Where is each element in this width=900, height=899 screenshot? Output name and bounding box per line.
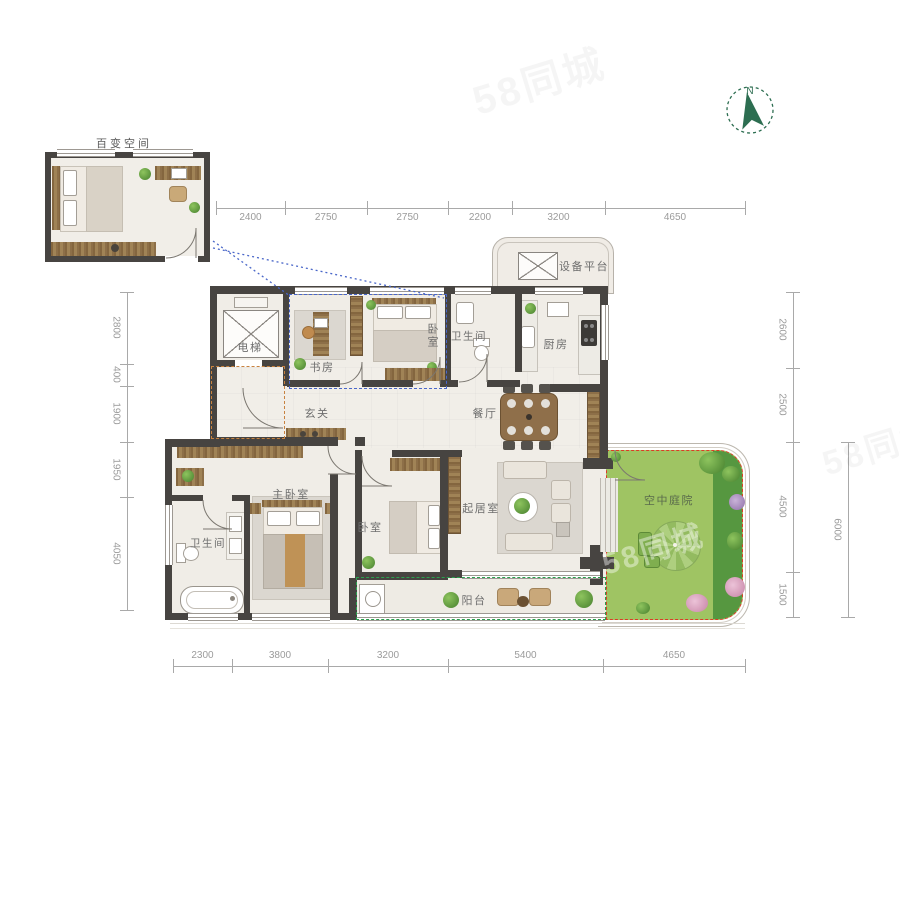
dimension-tick [786, 617, 800, 618]
dimension-label: 3200 [364, 650, 412, 661]
door-arc [243, 388, 283, 428]
dimension-tick [512, 201, 513, 215]
door-arc [413, 357, 440, 384]
dimension-label: 2200 [456, 212, 504, 223]
connector-line [213, 241, 290, 296]
dimension-label: 4050 [111, 529, 122, 577]
dimension-label: 2300 [179, 650, 227, 661]
door-arc [166, 228, 196, 258]
room-label-courtyard: 空中庭院 [644, 492, 694, 508]
room-label-foyer: 玄关 [305, 405, 330, 421]
dimension-label: 4650 [650, 650, 698, 661]
dimension-tick [786, 368, 800, 369]
dimension-tick [120, 364, 134, 365]
door-arc [328, 446, 356, 474]
room-label-master: 主卧室 [272, 486, 310, 502]
room-label-master-bath: 卫生间 [190, 536, 226, 551]
door-arc [203, 500, 232, 529]
dimension-tick [120, 292, 134, 293]
room-label-kitchen: 厨房 [544, 336, 569, 352]
room-label-bath-top: 卫生间 [451, 329, 487, 344]
dimension-label: 4650 [651, 212, 699, 223]
room-label-living: 起居室 [462, 500, 500, 516]
dimension-label: 2400 [227, 212, 275, 223]
room-label-bedroom-low: 卧室 [358, 519, 383, 535]
dimension-line [216, 208, 745, 209]
room-label-balcony: 阳台 [462, 592, 487, 608]
dimension-tick [328, 659, 329, 673]
dimension-tick [285, 201, 286, 215]
dimension-tick [232, 659, 233, 673]
dimension-tick [786, 572, 800, 573]
compass: N [727, 86, 773, 133]
dimension-tick [603, 659, 604, 673]
dimension-tick [120, 386, 134, 387]
door-arc [340, 362, 362, 384]
dimension-line [127, 292, 128, 610]
dimension-line [848, 442, 849, 617]
dimension-label: 2600 [777, 306, 788, 354]
dimension-label: 3800 [256, 650, 304, 661]
door-arc [459, 354, 487, 382]
door-arc [615, 450, 645, 480]
dimension-label: 2750 [302, 212, 350, 223]
dimension-tick [841, 617, 855, 618]
room-label-equipment: 设备平台 [559, 258, 609, 274]
room-label-study: 书房 [310, 359, 335, 375]
dimension-tick [120, 610, 134, 611]
dimension-label: 1500 [777, 570, 788, 618]
dimension-tick [448, 659, 449, 673]
dimension-line [793, 292, 794, 617]
dimension-tick [120, 497, 134, 498]
dimension-tick [745, 201, 746, 215]
dimension-tick [786, 442, 800, 443]
door-arc [362, 456, 392, 486]
connector-line [213, 248, 444, 298]
dimension-label: 3200 [535, 212, 583, 223]
inset-connector-lines [213, 241, 444, 298]
dimension-label: 1950 [111, 445, 122, 493]
dimension-label: 5400 [502, 650, 550, 661]
compass-n-label: N [746, 86, 753, 97]
dimension-tick [367, 201, 368, 215]
dimension-tick [841, 442, 855, 443]
dimension-tick [786, 292, 800, 293]
dimension-line [173, 666, 745, 667]
dimension-label: 6000 [832, 505, 843, 553]
dimension-tick [605, 201, 606, 215]
dimension-tick [448, 201, 449, 215]
dimension-label: 1900 [111, 390, 122, 438]
dimension-label: 2750 [384, 212, 432, 223]
dimension-tick [120, 442, 134, 443]
dimension-label: 2500 [777, 381, 788, 429]
dimension-tick [745, 659, 746, 673]
room-label-bedroom-top: 卧室 [424, 323, 440, 349]
inset-label: 百变空间 [96, 135, 152, 151]
dimension-tick [216, 201, 217, 215]
floorplan-canvas: N 百变空间 电梯 书房 卧室 卫生间 厨房 设备平台 玄关 餐厅 主卧室 卫生… [0, 0, 900, 899]
dimension-tick [173, 659, 174, 673]
dimension-label: 2800 [111, 304, 122, 352]
room-label-dining: 餐厅 [473, 405, 498, 421]
room-label-elevator: 电梯 [238, 339, 263, 355]
dimension-label: 4500 [777, 483, 788, 531]
